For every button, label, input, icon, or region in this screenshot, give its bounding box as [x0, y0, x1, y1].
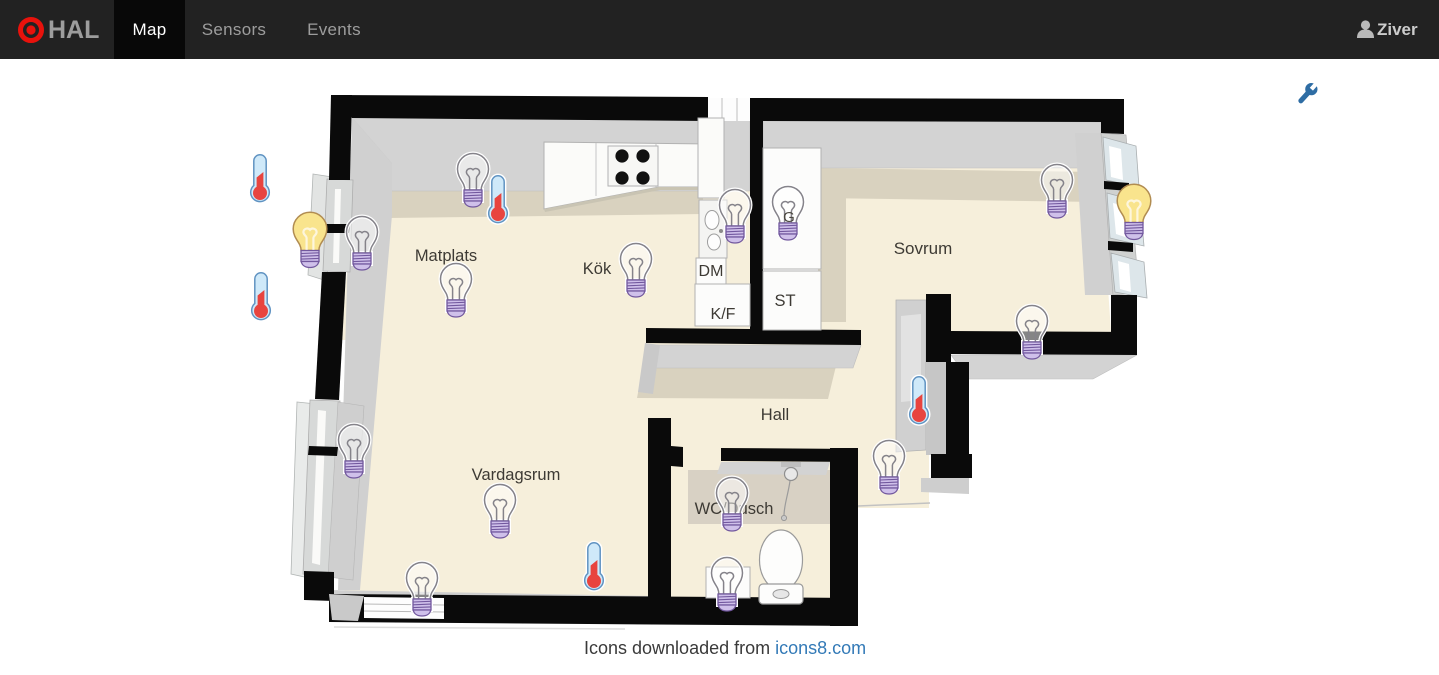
svg-text:K/F: K/F [711, 306, 736, 323]
svg-text:Kök: Kök [583, 260, 612, 278]
svg-text:ST: ST [774, 292, 795, 310]
svg-text:Vardagsrum: Vardagsrum [472, 466, 561, 484]
svg-text:Sovrum: Sovrum [894, 239, 953, 258]
svg-text:Icons downloaded from icons8.c: Icons downloaded from icons8.com [584, 638, 866, 658]
svg-text:G: G [783, 209, 795, 226]
svg-text:DM: DM [699, 263, 724, 280]
svg-text:Matplats: Matplats [415, 247, 477, 265]
svg-text:Hall: Hall [761, 406, 789, 424]
